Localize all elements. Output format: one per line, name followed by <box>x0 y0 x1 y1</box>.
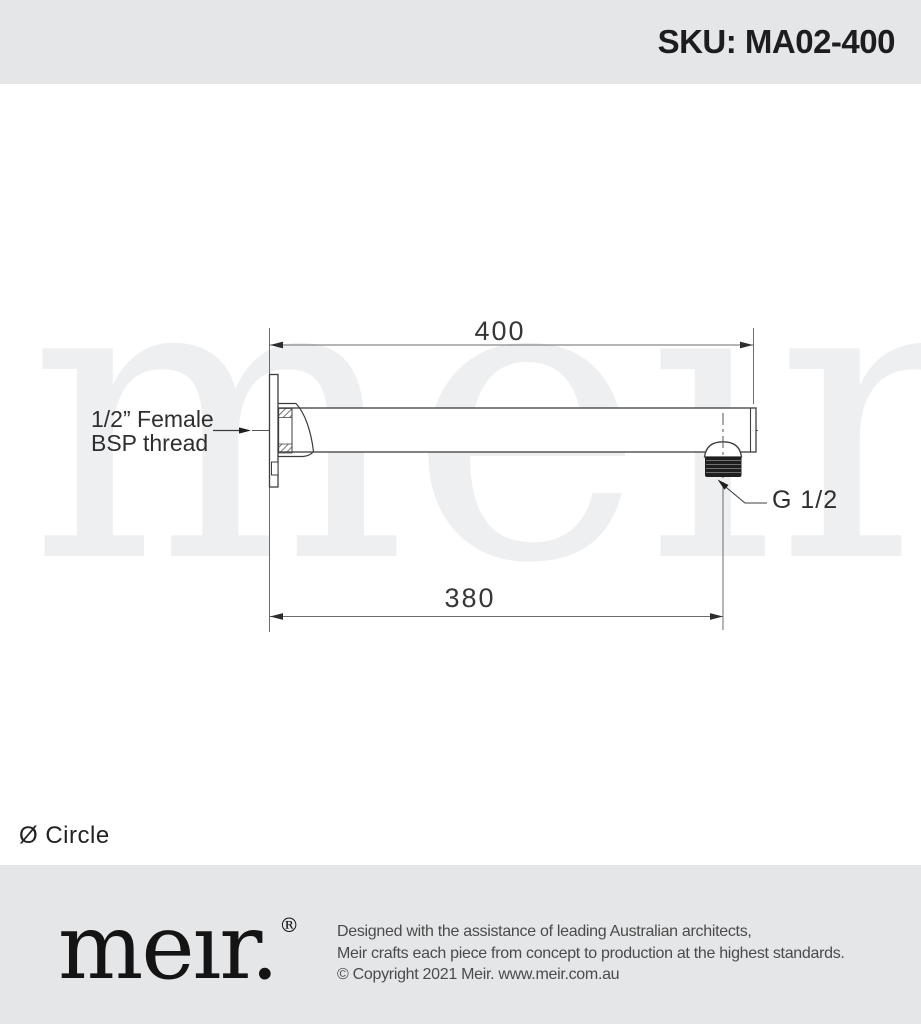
footer-text: Designed with the assistance of leading … <box>337 921 845 986</box>
footer-line-2: Meir crafts each piece from concept to p… <box>337 943 845 965</box>
footer-line-3: © Copyright 2021 Meir. www.meir.com.au <box>337 964 845 986</box>
footer-line-1: Designed with the assistance of leading … <box>337 921 845 943</box>
flange-screw-detail <box>272 462 279 475</box>
dimension-400-value: 400 <box>450 316 550 347</box>
dimension-380-value: 380 <box>420 583 520 614</box>
outlet-thread-label: G 1/2 <box>772 486 838 515</box>
shower-arm-tube <box>279 408 757 452</box>
inlet-thread-label: 1/2” Female BSP thread <box>91 408 214 455</box>
product-spec-sheet: SKU: MA02-400 meır. <box>0 0 921 1024</box>
brand-logo: meır.® <box>58 903 297 993</box>
brand-logo-text: meır. <box>58 895 277 1000</box>
registered-trademark-icon: ® <box>279 915 299 935</box>
male-thread-g12 <box>705 457 742 478</box>
shape-note: Ø Circle <box>19 822 110 850</box>
